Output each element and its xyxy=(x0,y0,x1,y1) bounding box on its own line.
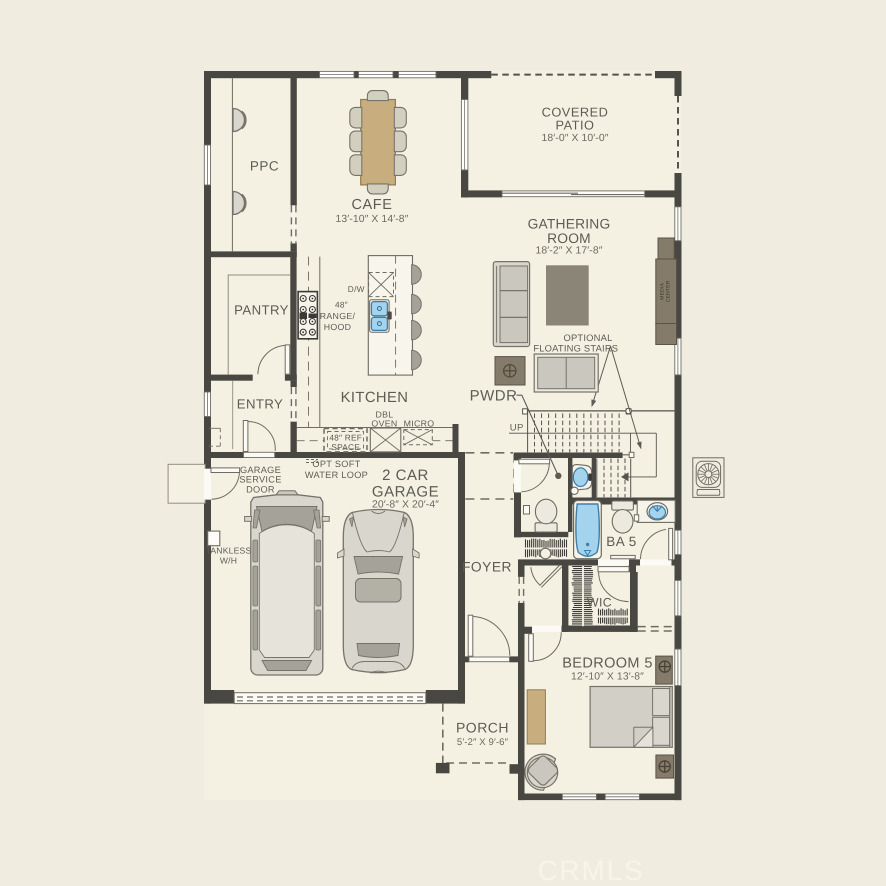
svg-text:GARAGE: GARAGE xyxy=(240,465,281,475)
svg-text:OVEN: OVEN xyxy=(371,418,397,428)
svg-text:TANKLESS: TANKLESS xyxy=(206,545,252,555)
svg-text:FOYER: FOYER xyxy=(462,559,512,574)
svg-text:CAFE: CAFE xyxy=(351,197,392,213)
svg-text:PWDR: PWDR xyxy=(470,387,518,404)
svg-text:BEDROOM 5: BEDROOM 5 xyxy=(562,655,653,671)
svg-text:BA 5: BA 5 xyxy=(606,534,637,549)
svg-text:12′-10″ X 13′-8″: 12′-10″ X 13′-8″ xyxy=(571,671,644,682)
svg-text:PPC: PPC xyxy=(250,159,279,174)
svg-text:GARAGE: GARAGE xyxy=(372,483,439,500)
svg-text:UP: UP xyxy=(510,423,524,434)
svg-text:ROOM: ROOM xyxy=(547,231,591,246)
svg-text:13′-10″ X 14′-8″: 13′-10″ X 14′-8″ xyxy=(336,214,409,225)
svg-text:SERVICE: SERVICE xyxy=(239,475,281,485)
svg-text:KITCHEN: KITCHEN xyxy=(341,390,409,406)
svg-text:W/H: W/H xyxy=(220,555,237,565)
svg-text:CENTER: CENTER xyxy=(666,280,672,302)
svg-text:OPT SOFT: OPT SOFT xyxy=(312,459,360,469)
svg-text:48″: 48″ xyxy=(335,300,348,310)
svg-text:ENTRY: ENTRY xyxy=(237,396,283,411)
svg-text:MICRO: MICRO xyxy=(404,418,435,428)
svg-text:PATIO: PATIO xyxy=(556,118,595,133)
svg-text:DOOR: DOOR xyxy=(246,484,275,494)
svg-text:2 CAR: 2 CAR xyxy=(382,467,429,484)
svg-text:SPACE: SPACE xyxy=(331,442,360,452)
svg-text:WIC: WIC xyxy=(587,596,612,610)
svg-text:PORCH: PORCH xyxy=(456,720,509,736)
svg-text:GATHERING: GATHERING xyxy=(528,217,611,232)
svg-text:20′-8″ X 20′-4″: 20′-8″ X 20′-4″ xyxy=(372,499,439,510)
svg-text:5′-2″ X 9′-6″: 5′-2″ X 9′-6″ xyxy=(457,737,509,748)
svg-text:FLOATING STAIRS: FLOATING STAIRS xyxy=(533,343,618,354)
svg-text:18′-0″ X 10′-0″: 18′-0″ X 10′-0″ xyxy=(541,133,608,144)
svg-text:48″ REF: 48″ REF xyxy=(329,433,362,443)
svg-text:D/W: D/W xyxy=(348,284,365,294)
svg-text:HOOD: HOOD xyxy=(324,322,352,332)
svg-text:WATER LOOP: WATER LOOP xyxy=(305,470,368,480)
svg-text:OPTIONAL: OPTIONAL xyxy=(563,332,612,343)
svg-text:18′-2″ X 17′-8″: 18′-2″ X 17′-8″ xyxy=(535,245,602,256)
svg-text:PANTRY: PANTRY xyxy=(234,303,289,318)
svg-text:CRMLS: CRMLS xyxy=(537,855,644,886)
svg-text:RANGE/: RANGE/ xyxy=(320,311,356,321)
